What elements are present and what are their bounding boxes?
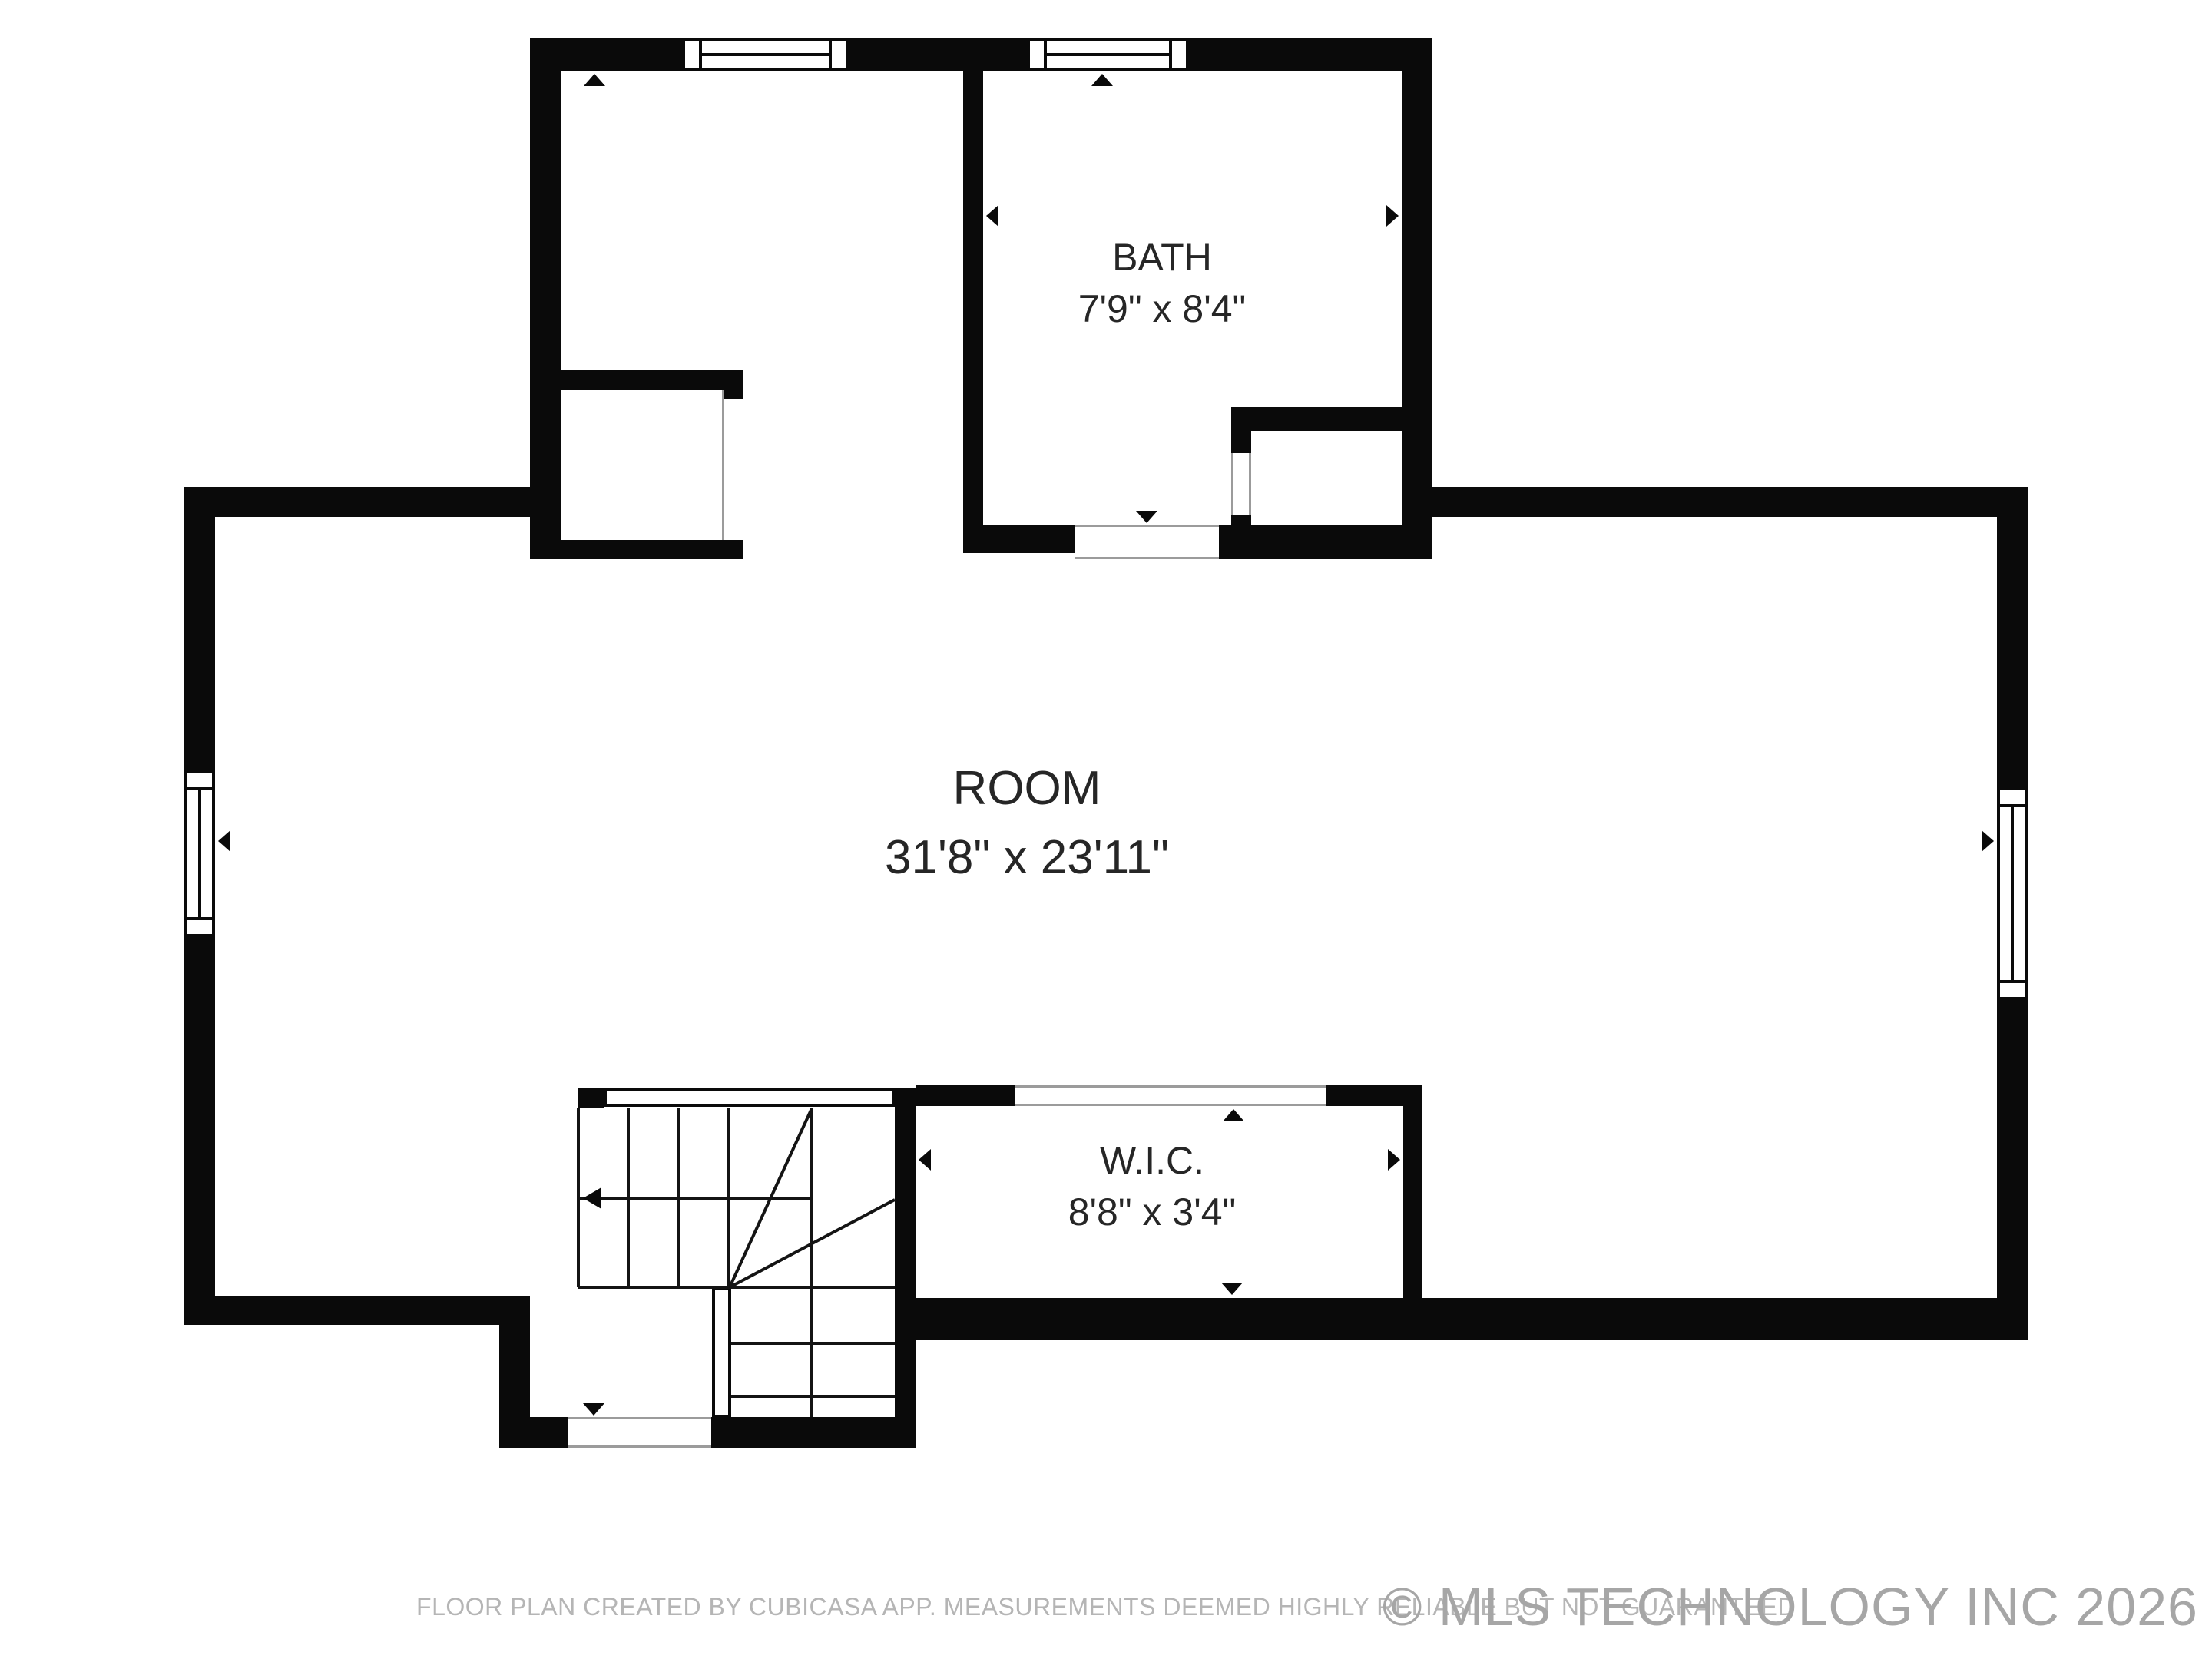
upper-room-up-arrow-icon: [584, 74, 605, 86]
wall-bath-left: [963, 71, 983, 553]
wall-right-closet-top: [1231, 407, 1403, 431]
wall-left-closet-bottom: [530, 540, 743, 559]
wall-wic-right: [1403, 1085, 1422, 1298]
wic-room-label: W.I.C. 8'8" x 3'4": [1068, 1135, 1237, 1238]
main-room-dimensions: 31'8" x 23'11": [885, 823, 1169, 892]
stair-direction-arrow-icon: [583, 1187, 601, 1209]
bath-door-opening: [1075, 525, 1219, 559]
wall-upper-left: [530, 38, 561, 559]
bath-room-label: BATH 7'9" x 8'4": [1078, 232, 1247, 335]
wall-right-closet-left-a: [1231, 407, 1251, 453]
wall-stairs-right: [895, 1088, 916, 1448]
window-right: [1997, 787, 2028, 1000]
window-top-2: [1027, 38, 1189, 71]
right-closet-door-opening: [1231, 453, 1251, 515]
stair-entry-door-opening: [568, 1417, 711, 1448]
floor-plan: BATH 7'9" x 8'4" ROOM 31'8" x 23'11" W.I…: [0, 0, 2212, 1659]
wall-main-bottom-right: [895, 1298, 2028, 1340]
wall-stair-post: [578, 1088, 604, 1108]
stair-entry-down-arrow-icon: [583, 1403, 604, 1416]
main-room-label: ROOM 31'8" x 23'11": [885, 754, 1169, 892]
window-left: [184, 770, 215, 937]
wall-main-top-left: [184, 487, 561, 517]
mls-watermark: © MLS TECHNOLOGY INC 2026: [1382, 1576, 2198, 1637]
window-top-1: [682, 38, 849, 71]
main-room-name: ROOM: [885, 754, 1169, 823]
bath-room-name: BATH: [1078, 232, 1247, 283]
bath-room-dimensions: 7'9" x 8'4": [1078, 283, 1247, 335]
wall-right-closet-left-b: [1231, 515, 1251, 559]
wic-down-arrow-icon: [1221, 1283, 1243, 1295]
wic-room-dimensions: 8'8" x 3'4": [1068, 1187, 1237, 1238]
wall-upper-top: [530, 38, 1432, 71]
wic-room-name: W.I.C.: [1068, 1135, 1237, 1187]
wall-left-closet-stub: [722, 370, 743, 399]
wic-door-opening: [1015, 1085, 1326, 1106]
stair-top-railing: [604, 1088, 895, 1107]
room-left-window-arrow-icon: [218, 830, 230, 852]
bath-door-down-arrow-icon: [1136, 511, 1157, 523]
left-closet-door-opening: [722, 390, 724, 540]
wall-left-closet-top: [530, 370, 743, 390]
wic-right-arrow-icon: [1388, 1149, 1400, 1171]
bath-up-arrow-icon: [1091, 74, 1113, 86]
wall-wic-top-left: [916, 1085, 1015, 1106]
wic-left-arrow-icon: [919, 1149, 931, 1171]
room-right-window-arrow-icon: [1982, 830, 1994, 852]
wall-main-top-right: [1432, 487, 2028, 517]
wall-bath-bottom-west: [963, 525, 1075, 553]
wic-door-up-arrow-icon: [1223, 1109, 1244, 1121]
bath-left-arrow-icon: [986, 205, 998, 227]
wall-upper-right: [1402, 38, 1432, 559]
wall-main-bottom-left: [184, 1296, 530, 1325]
stair-mid-railing: [712, 1287, 731, 1418]
bath-right-arrow-icon: [1386, 205, 1399, 227]
